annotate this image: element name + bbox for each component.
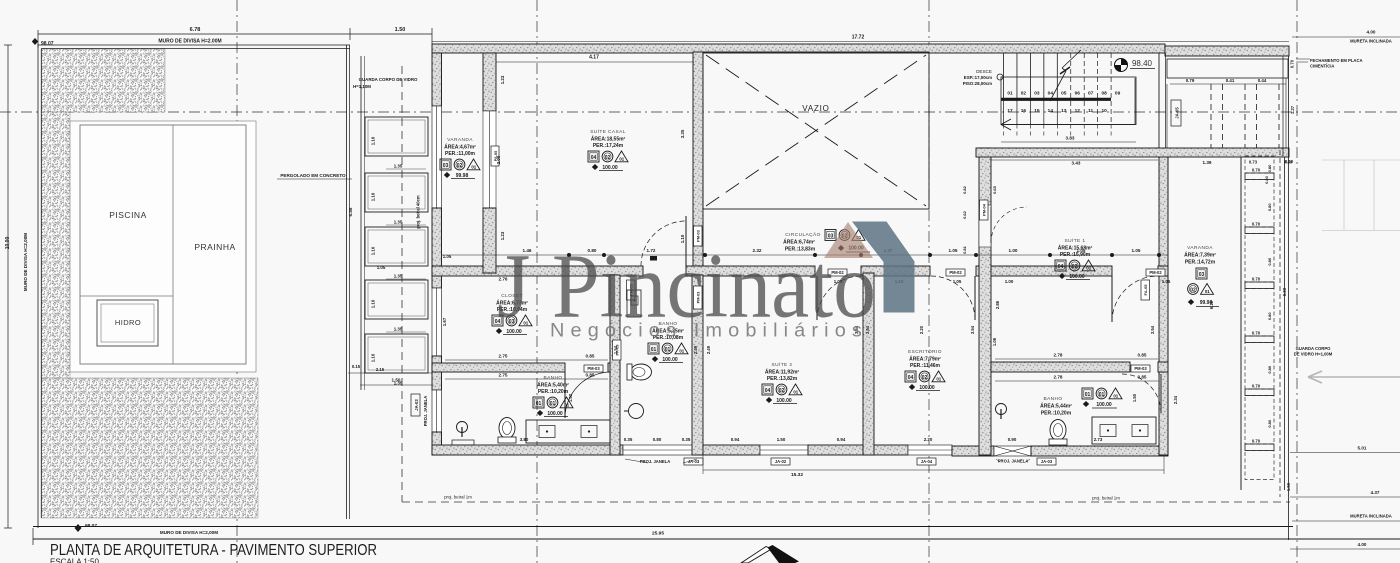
svg-text:0.70: 0.70	[1252, 331, 1261, 336]
svg-text:ESCRITÓRIO: ESCRITÓRIO	[908, 348, 942, 355]
svg-text:1.50: 1.50	[1132, 393, 1137, 402]
svg-text:ÁREA:18,55m²: ÁREA:18,55m²	[591, 136, 626, 143]
svg-text:02: 02	[605, 155, 611, 161]
svg-text:1.54: 1.54	[613, 345, 618, 354]
svg-text:Negócios Imobiliários: Negócios Imobiliários	[550, 320, 868, 342]
svg-text:100.00: 100.00	[662, 357, 678, 363]
svg-text:JA-03: JA-03	[414, 399, 419, 411]
svg-text:BANHO: BANHO	[1043, 396, 1062, 402]
svg-text:ÁREA:7,79m²: ÁREA:7,79m²	[909, 356, 941, 363]
svg-text:ÁREA:11,92m²: ÁREA:11,92m²	[765, 369, 800, 376]
svg-text:1.00: 1.00	[1009, 248, 1018, 253]
svg-text:4.00: 4.00	[1358, 542, 1367, 547]
svg-text:2.86: 2.86	[995, 300, 1000, 309]
svg-text:02: 02	[1021, 91, 1027, 97]
svg-text:1.10: 1.10	[371, 353, 376, 362]
svg-text:PROJ. JANELA: PROJ. JANELA	[998, 459, 1028, 464]
svg-text:11: 11	[1088, 108, 1093, 114]
svg-text:JA-04: JA-04	[921, 459, 933, 464]
svg-text:MURO DE DIVISA H=2.00M: MURO DE DIVISA H=2.00M	[158, 39, 221, 45]
svg-text:1.35: 1.35	[394, 274, 403, 279]
svg-text:0.70: 0.70	[1252, 384, 1261, 389]
svg-text:1.05: 1.05	[377, 265, 386, 270]
svg-text:CIMENTÍCIA: CIMENTÍCIA	[1310, 64, 1334, 69]
svg-text:0.70: 0.70	[1252, 222, 1261, 227]
svg-text:1.35: 1.35	[394, 220, 403, 225]
svg-text:GUARDA CORPO DE VIDRO: GUARDA CORPO DE VIDRO	[359, 77, 418, 82]
svg-text:02: 02	[1190, 287, 1196, 293]
svg-text:DESCE: DESCE	[976, 69, 992, 74]
svg-text:1.10: 1.10	[371, 192, 376, 201]
svg-text:PER.:13,82m: PER.:13,82m	[767, 376, 798, 382]
svg-text:0.35: 0.35	[682, 437, 691, 442]
svg-text:1.05: 1.05	[1077, 248, 1086, 253]
svg-text:1.67: 1.67	[442, 317, 447, 326]
svg-text:MURETA INCLINADA: MURETA INCLINADA	[1350, 39, 1392, 44]
svg-text:VARANDA: VARANDA	[1187, 245, 1213, 251]
svg-text:3.54: 3.54	[970, 325, 975, 334]
svg-text:01: 01	[550, 401, 556, 407]
svg-text:0.41: 0.41	[1226, 78, 1235, 83]
svg-text:01: 01	[651, 347, 657, 353]
svg-text:PM-02: PM-02	[949, 270, 962, 275]
svg-text:0.85: 0.85	[1138, 375, 1147, 380]
svg-text:0.15: 0.15	[352, 364, 361, 369]
svg-text:09: 09	[1115, 91, 1121, 97]
svg-text:2.75: 2.75	[499, 373, 508, 378]
svg-text:0.70: 0.70	[1252, 277, 1261, 282]
svg-text:3.80: 3.80	[520, 437, 529, 442]
svg-text:VAZIO: VAZIO	[802, 104, 829, 113]
svg-text:proj. beiral 1m: proj. beiral 1m	[444, 495, 472, 500]
svg-text:0.80: 0.80	[1267, 419, 1272, 428]
svg-text:17.72: 17.72	[852, 35, 865, 41]
svg-text:0.94: 0.94	[731, 437, 740, 442]
svg-text:PISCINA: PISCINA	[109, 210, 147, 220]
svg-text:05: 05	[1061, 91, 1067, 97]
svg-text:1.50: 1.50	[777, 437, 786, 442]
svg-text:1.10: 1.10	[371, 246, 376, 255]
svg-text:MURO DE DIVISA H=2,00M: MURO DE DIVISA H=2,00M	[23, 233, 28, 291]
svg-text:MURETA INCLINADA: MURETA INCLINADA	[1350, 514, 1392, 519]
svg-text:PERGOLADO EM CONCRETO: PERGOLADO EM CONCRETO	[280, 173, 346, 178]
svg-text:1.06: 1.06	[992, 337, 997, 346]
svg-text:PM-03: PM-03	[1134, 366, 1147, 371]
svg-text:0.65: 0.65	[992, 185, 997, 194]
svg-text:SUÍTE 1: SUÍTE 1	[1065, 237, 1086, 244]
svg-text:2.78: 2.78	[1054, 353, 1063, 358]
svg-text:ESP.:17,00cm: ESP.:17,00cm	[964, 75, 992, 80]
svg-text:0.85: 0.85	[586, 354, 595, 359]
svg-text:1.35: 1.35	[394, 327, 403, 332]
svg-text:MURO DE DIVISA H=2,00M: MURO DE DIVISA H=2,00M	[160, 530, 218, 535]
svg-text:PER.:10,20m: PER.:10,20m	[1041, 411, 1072, 417]
svg-text:JA-03: JA-03	[1041, 459, 1053, 464]
svg-text:SUÍTE 2: SUÍTE 2	[772, 361, 793, 368]
svg-text:JA-02: JA-02	[775, 459, 787, 464]
svg-text:ÁREA:15,68m²: ÁREA:15,68m²	[1058, 245, 1093, 252]
svg-text:1.05: 1.05	[1132, 248, 1141, 253]
svg-text:2.20: 2.20	[924, 437, 933, 442]
svg-text:15: 15	[1034, 108, 1040, 114]
svg-text:4.17: 4.17	[589, 55, 599, 61]
svg-text:100.00: 100.00	[919, 385, 935, 391]
svg-text:1.50: 1.50	[392, 378, 401, 383]
svg-text:0.80: 0.80	[1267, 257, 1272, 266]
svg-text:ÁREA:5,40m²: ÁREA:5,40m²	[537, 382, 569, 389]
svg-text:04: 04	[591, 155, 597, 161]
svg-text:1.05: 1.05	[443, 254, 452, 259]
svg-text:0.80: 0.80	[1267, 203, 1272, 212]
svg-text:2.49: 2.49	[706, 345, 711, 354]
svg-text:PER.:14,72m: PER.:14,72m	[1185, 260, 1216, 266]
svg-text:1.00: 1.00	[1005, 279, 1014, 284]
svg-text:08: 08	[1101, 91, 1107, 97]
svg-text:PER.:11,46m: PER.:11,46m	[910, 363, 941, 369]
svg-text:01: 01	[471, 165, 476, 170]
svg-text:ÁREA:5,44m²: ÁREA:5,44m²	[1040, 403, 1072, 410]
svg-text:1.39: 1.39	[1203, 160, 1212, 165]
svg-text:PRAINHA: PRAINHA	[194, 242, 235, 252]
svg-text:2.00: 2.00	[496, 155, 501, 164]
svg-text:01: 01	[1007, 91, 1013, 97]
svg-text:1.05: 1.05	[949, 248, 958, 253]
svg-text:01: 01	[1099, 392, 1105, 398]
svg-text:100.00: 100.00	[1096, 402, 1112, 408]
svg-text:1.10: 1.10	[371, 299, 376, 308]
svg-text:0.85: 0.85	[1138, 353, 1147, 358]
svg-text:0.82: 0.82	[962, 185, 967, 194]
svg-text:100.00: 100.00	[547, 411, 563, 417]
svg-text:98.07: 98.07	[41, 41, 54, 47]
svg-text:0.79: 0.79	[1186, 78, 1195, 83]
svg-text:01: 01	[679, 349, 684, 354]
svg-text:HIDRO: HIDRO	[115, 318, 141, 327]
svg-text:14: 14	[1048, 108, 1054, 114]
svg-text:100.00: 100.00	[602, 165, 618, 171]
svg-text:PM-04: PM-04	[982, 203, 987, 216]
svg-text:02: 02	[457, 163, 463, 169]
svg-text:01: 01	[1205, 289, 1210, 294]
svg-text:02: 02	[922, 375, 928, 381]
svg-text:02: 02	[1072, 264, 1078, 270]
svg-text:25.95: 25.95	[652, 531, 664, 537]
svg-text:01: 01	[619, 157, 624, 162]
svg-text:03: 03	[1034, 91, 1040, 97]
svg-text:1.50: 1.50	[1286, 482, 1291, 491]
svg-text:0.44: 0.44	[1258, 78, 1267, 83]
svg-text:04: 04	[908, 375, 914, 381]
svg-text:0.62: 0.62	[962, 210, 967, 219]
svg-text:3.54: 3.54	[1150, 325, 1155, 334]
svg-text:proj. beiral 1m: proj. beiral 1m	[1092, 496, 1120, 501]
svg-text:04: 04	[765, 388, 771, 394]
svg-text:99.98: 99.98	[456, 173, 469, 179]
svg-text:0.70: 0.70	[1290, 59, 1295, 68]
svg-text:01: 01	[936, 377, 941, 382]
svg-text:PROJ. JANELA: PROJ. JANELA	[423, 396, 428, 426]
svg-text:1.35: 1.35	[394, 164, 403, 169]
svg-text:10,00: 10,00	[5, 237, 11, 250]
svg-text:12: 12	[1075, 108, 1081, 114]
svg-text:2.78: 2.78	[1054, 375, 1063, 380]
svg-text:100.00: 100.00	[1069, 274, 1085, 280]
svg-text:0.80: 0.80	[1267, 164, 1272, 173]
svg-text:1.37: 1.37	[1290, 105, 1295, 114]
svg-text:ESCALA 1:50: ESCALA 1:50	[50, 558, 99, 563]
svg-text:17: 17	[1007, 108, 1013, 114]
svg-text:03: 03	[1199, 272, 1205, 278]
svg-text:PER.:10,20m: PER.:10,20m	[538, 389, 569, 395]
svg-text:0.81: 0.81	[962, 245, 967, 254]
svg-text:2.49: 2.49	[693, 345, 698, 354]
svg-text:GUARDA CORPO: GUARDA CORPO	[1296, 346, 1331, 351]
svg-text:0.70: 0.70	[1252, 168, 1261, 173]
svg-text:2.34: 2.34	[1173, 395, 1178, 404]
svg-text:PER.:17,24m: PER.:17,24m	[593, 143, 624, 149]
svg-text:06: 06	[1075, 91, 1081, 97]
svg-text:ÁREA:7,39m²: ÁREA:7,39m²	[1184, 252, 1216, 259]
svg-text:3.83: 3.83	[1066, 136, 1075, 141]
svg-text:2.15: 2.15	[376, 367, 385, 372]
svg-text:0.80: 0.80	[1267, 312, 1272, 321]
svg-text:16: 16	[1021, 108, 1027, 114]
svg-text:2.20: 2.20	[919, 325, 924, 334]
svg-text:1.05: 1.05	[953, 279, 962, 284]
svg-text:FECHAMENTO EM PLACA: FECHAMENTO EM PLACA	[1310, 58, 1363, 63]
svg-text:ÁREA:4,67m²: ÁREA:4,67m²	[444, 144, 476, 151]
svg-text:JA-05: JA-05	[1175, 107, 1180, 119]
svg-text:0.70: 0.70	[1252, 439, 1261, 444]
svg-text:PROJ. JANELA: PROJ. JANELA	[640, 459, 670, 464]
svg-text:0.85: 0.85	[586, 373, 595, 378]
svg-text:1.52: 1.52	[568, 393, 573, 402]
svg-text:1.23: 1.23	[500, 75, 505, 84]
svg-text:01: 01	[1086, 266, 1091, 271]
svg-text:1.05: 1.05	[1162, 279, 1171, 284]
svg-text:2.73: 2.73	[1094, 437, 1103, 442]
svg-text:1.50: 1.50	[395, 27, 406, 33]
svg-text:PM-03: PM-03	[587, 366, 600, 371]
svg-text:VARANDA: VARANDA	[447, 137, 473, 143]
svg-text:DE VIDRO H=1,00M: DE VIDRO H=1,00M	[1294, 352, 1333, 357]
svg-text:100.00: 100.00	[776, 398, 792, 404]
svg-text:6.16: 6.16	[1209, 300, 1214, 309]
svg-text:PLANTA DE ARQUITETURA - PAVIME: PLANTA DE ARQUITETURA - PAVIMENTO SUPERI…	[50, 542, 377, 559]
svg-text:4.37: 4.37	[1371, 490, 1380, 495]
svg-text:3.35: 3.35	[680, 129, 685, 138]
svg-text:BANHO: BANHO	[543, 375, 562, 381]
svg-text:6.88: 6.88	[348, 207, 353, 216]
svg-text:03: 03	[443, 163, 449, 169]
svg-text:0.73: 0.73	[1249, 160, 1258, 165]
svg-text:FA-05: FA-05	[1143, 284, 1148, 296]
svg-text:98.07: 98.07	[85, 523, 97, 529]
svg-text:0.94: 0.94	[837, 437, 846, 442]
svg-text:PISO:28,00cm: PISO:28,00cm	[963, 81, 992, 86]
svg-text:0.35: 0.35	[624, 437, 633, 442]
svg-text:4.00: 4.00	[1367, 30, 1376, 35]
svg-text:2.75: 2.75	[499, 354, 508, 359]
svg-text:01: 01	[1113, 394, 1118, 399]
svg-text:01: 01	[1085, 392, 1091, 398]
svg-text:3.43: 3.43	[1072, 161, 1081, 166]
svg-text:01: 01	[793, 390, 798, 395]
svg-text:10: 10	[1101, 108, 1107, 114]
svg-text:proj. beiral 40cm: proj. beiral 40cm	[416, 195, 421, 229]
svg-text:1.10: 1.10	[371, 136, 376, 145]
svg-text:15.32: 15.32	[791, 472, 803, 478]
svg-text:13: 13	[1061, 108, 1067, 114]
svg-text:04: 04	[1058, 264, 1064, 270]
svg-text:6.78: 6.78	[190, 27, 201, 33]
svg-text:PER.:11,00m: PER.:11,00m	[445, 151, 476, 157]
svg-text:02: 02	[779, 388, 785, 394]
svg-text:07: 07	[1088, 91, 1094, 97]
svg-text:0.90: 0.90	[1008, 437, 1017, 442]
svg-text:01: 01	[665, 347, 671, 353]
svg-text:0.80: 0.80	[1267, 365, 1272, 374]
svg-text:01: 01	[536, 401, 542, 407]
svg-text:PM-02: PM-02	[1149, 270, 1162, 275]
svg-text:5.01: 5.01	[1358, 446, 1367, 451]
svg-text:98.40: 98.40	[1132, 59, 1153, 68]
svg-text:0.10: 0.10	[1284, 160, 1293, 165]
svg-text:H=1,10M: H=1,10M	[353, 84, 371, 89]
svg-text:0.80: 0.80	[653, 437, 662, 442]
svg-text:SUÍTE CASAL: SUÍTE CASAL	[590, 128, 626, 135]
